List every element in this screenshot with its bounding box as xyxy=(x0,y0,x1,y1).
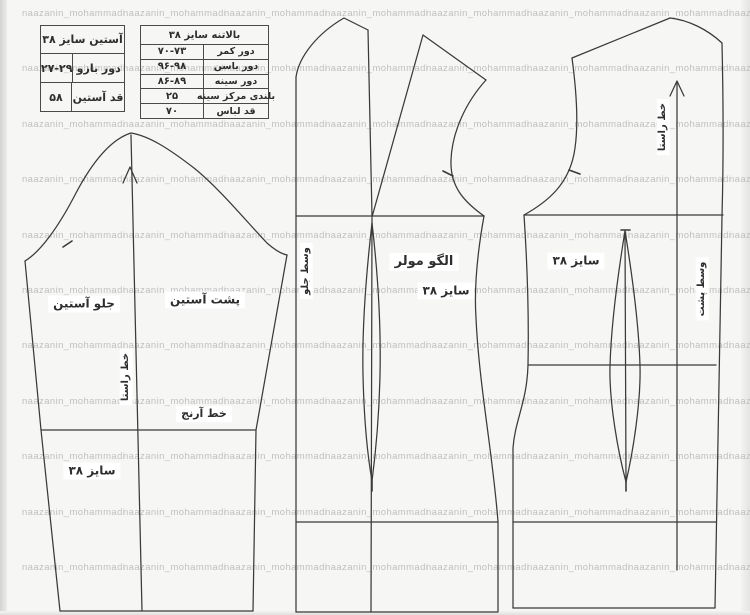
sleeve-grainline xyxy=(131,135,142,611)
back-dart-center-line xyxy=(625,231,626,482)
sleeve-measurements-table: آستین سایز ۳۸ دور بازو ۲۷-۲۹ قد آستین ۵۸ xyxy=(40,25,125,112)
measurement-value: ۷۰ xyxy=(141,104,203,118)
back-waist-dart-left-leg xyxy=(610,231,626,482)
center-front-label: وسط جلو xyxy=(300,243,313,299)
measurement-value: ۲۵ xyxy=(141,89,203,103)
front-pattern-size-label: سایز ۳۸ xyxy=(417,283,474,300)
back-waist-dart-right-leg xyxy=(625,231,640,482)
front-neckline xyxy=(296,18,344,77)
back-size-label: سایز ۳۸ xyxy=(547,253,604,270)
back-neckline xyxy=(670,18,722,43)
front-shoulder-dart-left-leg xyxy=(368,30,372,216)
measurement-value: ۷۰-۷۳ xyxy=(141,45,203,59)
back-grainline-label: خط راستا xyxy=(657,99,670,155)
front-shoulder-line-b xyxy=(423,35,486,80)
measurement-label: بلندی مرکز سینه xyxy=(203,89,268,103)
sleeve-grainline-label: خط راستا xyxy=(120,349,133,405)
sleeve-back-seam xyxy=(253,255,287,611)
measurement-label: دور بازو xyxy=(72,54,124,82)
table-row: دور کمر ۷۰-۷۳ xyxy=(141,45,268,60)
table-row: دور بازو ۲۷-۲۹ xyxy=(41,54,124,83)
measurement-label: قد آستین xyxy=(71,83,124,111)
sleeve-size-label: سایز ۳۸ xyxy=(63,463,120,480)
bodice-table-title: بالاتنه سایز ۳۸ xyxy=(141,26,268,45)
measurement-label: دور سینه xyxy=(203,75,268,89)
sleeve-front-label: جلو آستین xyxy=(48,296,120,313)
sleeve-grainline-arrow xyxy=(123,167,137,183)
measurement-label: دور کمر xyxy=(203,45,268,59)
table-row: قد آستین ۵۸ xyxy=(41,83,124,111)
sleeve-table-title: آستین سایز ۳۸ xyxy=(41,26,124,54)
front-pattern-title-label: الگو مولر xyxy=(390,253,459,271)
table-row: بلندی مرکز سینه ۲۵ xyxy=(141,89,268,104)
sleeve-pattern-piece xyxy=(25,133,287,611)
bodice-measurements-table: بالاتنه سایز ۳۸ دور کمر ۷۰-۷۳ دور باسن ۹… xyxy=(140,25,269,119)
back-side-seam xyxy=(513,215,528,608)
front-bodice-pattern-piece xyxy=(296,18,498,612)
measurement-value: ۸۶-۸۹ xyxy=(141,75,203,89)
table-row: دور سینه ۸۶-۸۹ xyxy=(141,75,268,90)
sewing-pattern-sheet: naazanin_mohammadinaazanin_mohammadinaaz… xyxy=(0,0,750,615)
elbow-line-label: خط آرنج xyxy=(176,406,232,422)
front-armhole-curve xyxy=(451,80,486,216)
center-back-label: وسط پشت xyxy=(696,258,709,321)
back-shoulder-line xyxy=(572,18,670,58)
back-bodice-pattern-piece xyxy=(513,18,723,608)
measurement-value: ۹۶-۹۸ xyxy=(141,60,203,74)
measurement-value: ۲۷-۲۹ xyxy=(41,54,72,82)
front-dart-center-line xyxy=(371,218,372,612)
sleeve-front-seam xyxy=(25,261,60,611)
table-row: دور باسن ۹۶-۹۸ xyxy=(141,60,268,75)
measurement-label: دور باسن xyxy=(203,60,268,74)
front-shoulder-dart-right-leg xyxy=(372,35,423,217)
back-armhole-notch xyxy=(569,170,580,174)
sleeve-cap-notch xyxy=(63,241,72,247)
front-waist-dart-left-leg xyxy=(363,223,372,481)
table-row: قد لباس ۷۰ xyxy=(141,104,268,118)
center-back-line xyxy=(715,43,723,608)
measurement-label: قد لباس xyxy=(203,104,268,118)
sleeve-back-label: پشت آستین xyxy=(165,292,245,309)
sleeve-cap-curve xyxy=(25,133,287,261)
front-shoulder-line-a xyxy=(344,18,368,30)
measurement-value: ۵۸ xyxy=(41,83,71,111)
back-armhole-curve xyxy=(524,58,577,215)
front-waist-dart-right-leg xyxy=(372,223,380,481)
front-side-seam xyxy=(475,216,498,611)
